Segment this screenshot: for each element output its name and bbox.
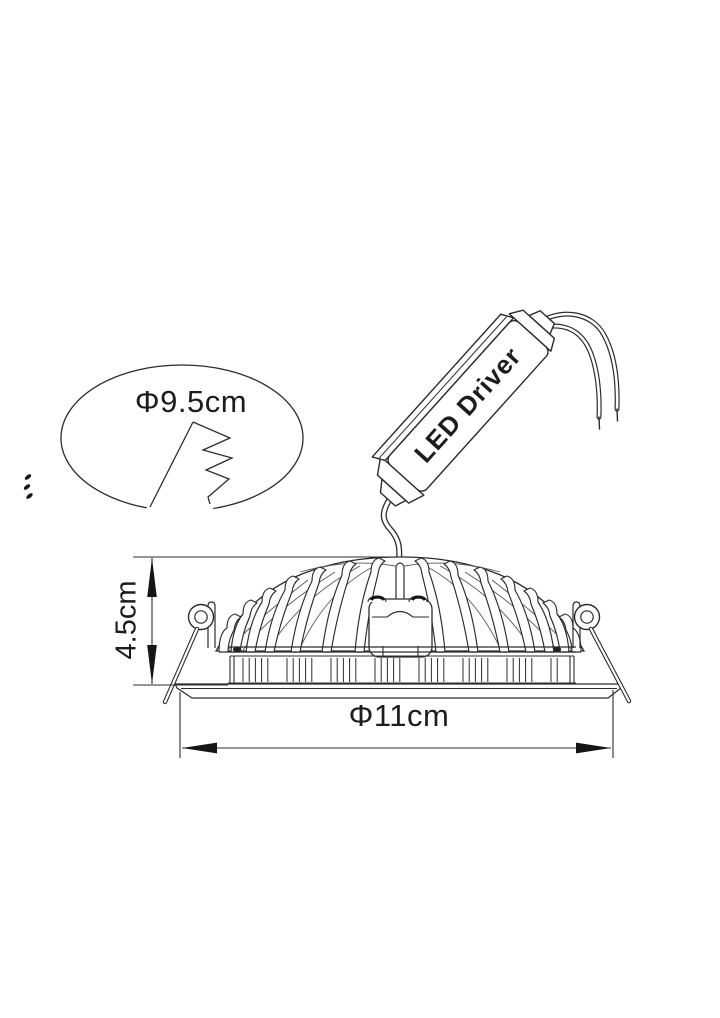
slotted-ring [228, 656, 576, 683]
junction-box [368, 596, 432, 657]
fixture-diameter-label: Φ11cm [349, 698, 450, 734]
cutout-diameter-label: Φ9.5cm [135, 384, 247, 420]
diagram-canvas: Φ9.5cm 4.5cm Φ11cm LED Driver [0, 0, 720, 1018]
debris-marks [23, 473, 34, 500]
driver-output-wire [384, 497, 400, 562]
lamp-body [165, 557, 629, 702]
fixture-height-label: 4.5cm [111, 581, 144, 660]
trim-flange [175, 684, 622, 698]
